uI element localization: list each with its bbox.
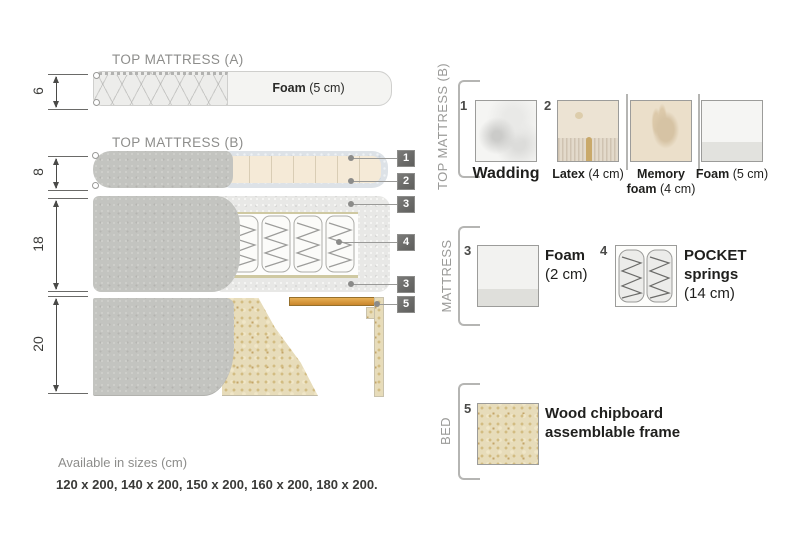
callout-5: 5	[397, 296, 415, 313]
foam-5cm-caption: Foam (5 cm)	[694, 167, 770, 182]
stitch-dot	[93, 72, 100, 79]
pocket-springs-caption: POCKETsprings(14 cm)	[684, 246, 747, 303]
top-mattress-b-cover	[93, 151, 233, 188]
leader-line-1	[351, 158, 397, 159]
available-sizes-title: Available in sizes (cm)	[58, 455, 187, 470]
legend-section-label-bed: BED	[438, 411, 454, 451]
legend-section-label-top-mattress-b: TOP MATTRESS (B)	[435, 70, 451, 190]
leader-line-5	[377, 304, 397, 305]
pocket-detail: (14 cm)	[684, 285, 735, 302]
leader-line-4	[339, 242, 397, 243]
latex-name: Latex	[552, 167, 585, 181]
top-mattress-a-illustration: Foam (5 cm)	[93, 71, 392, 106]
legend-item-4-number: 4	[600, 243, 607, 258]
foam2-name: Foam	[545, 247, 585, 264]
top-mattress-a-title: TOP MATTRESS (A)	[112, 52, 244, 67]
dimension-label-6: 6	[30, 83, 46, 99]
latex-caption: Latex (4 cm)	[550, 167, 626, 182]
dimension-arrow	[56, 201, 57, 289]
pocket-springs-thumbnail-art	[616, 246, 676, 306]
stitch-dot	[92, 152, 99, 159]
dimension-bracket-6	[48, 74, 88, 110]
legend-item-5-number: 5	[464, 401, 471, 416]
callout-4: 4	[397, 234, 415, 251]
dimension-bracket-8	[48, 156, 88, 191]
dimension-label-20: 20	[30, 332, 46, 356]
legend-item-2-number: 2	[544, 98, 551, 113]
latex-foam-blocks-illustration	[228, 156, 381, 183]
latex-detail: (4 cm)	[585, 167, 624, 181]
leader-dot-2	[348, 178, 354, 184]
foam-detail: (5 cm)	[306, 81, 345, 95]
foam-2cm-thumbnail	[477, 245, 539, 307]
pocket-name-line1: POCKET	[684, 247, 747, 264]
legend-item-1-number: 1	[460, 98, 467, 113]
foam-name: Foam	[272, 81, 305, 95]
leader-dot-3-top	[348, 201, 354, 207]
top-mattress-b-title: TOP MATTRESS (B)	[112, 135, 244, 150]
memory-name-line2: foam	[627, 182, 657, 196]
latex-thumbnail	[557, 100, 619, 162]
dimension-label-8: 8	[30, 164, 46, 180]
dimension-arrow	[56, 299, 57, 391]
memory-name-line1: Memory	[637, 167, 685, 181]
mattress-cover	[93, 196, 240, 292]
leader-dot-4	[336, 239, 342, 245]
foam-2cm-caption: Foam(2 cm)	[545, 246, 588, 284]
bed-upholstery-front	[93, 298, 234, 396]
leader-line-3-bottom	[351, 284, 397, 285]
foam2-detail: (2 cm)	[545, 266, 588, 283]
callout-3-top: 3	[397, 196, 415, 213]
chipboard-line2: assemblable frame	[545, 424, 680, 441]
memory-foam-caption: Memoryfoam (4 cm)	[623, 167, 699, 197]
leader-dot-5	[374, 301, 380, 307]
dimension-bracket-18	[48, 198, 88, 292]
legend-divider	[698, 94, 700, 170]
bed-side-rail	[374, 297, 384, 397]
leader-line-3-top	[351, 204, 397, 205]
stitch-dot	[93, 99, 100, 106]
leader-dot-1	[348, 155, 354, 161]
chipboard-thumbnail	[477, 403, 539, 465]
wood-slat-illustration	[289, 297, 384, 306]
foam5-name: Foam	[696, 167, 729, 181]
dimension-label-18: 18	[30, 232, 46, 256]
legend-section-label-mattress: MATTRESS	[439, 236, 455, 316]
leader-dot-3-bottom	[348, 281, 354, 287]
quilted-cover-pattern	[94, 72, 228, 105]
callout-1: 1	[397, 150, 415, 167]
wadding-thumbnail	[475, 100, 537, 162]
legend-item-3-number: 3	[464, 243, 471, 258]
foam-5cm-thumbnail	[701, 100, 763, 162]
leader-line-2	[351, 181, 397, 182]
dimension-bracket-20	[48, 296, 88, 394]
legend-divider	[626, 94, 628, 170]
chipboard-caption: Wood chipboardassemblable frame	[545, 404, 680, 442]
callout-2: 2	[397, 173, 415, 190]
memory-detail: (4 cm)	[656, 182, 695, 196]
wadding-caption: Wadding	[468, 166, 544, 181]
pocket-springs-thumbnail	[615, 245, 677, 307]
dimension-arrow	[56, 159, 57, 188]
memory-foam-thumbnail	[630, 100, 692, 162]
dimension-arrow	[56, 77, 57, 107]
pocket-name-line2: springs	[684, 266, 738, 283]
stitch-dot	[92, 182, 99, 189]
foam5-detail: (5 cm)	[729, 167, 768, 181]
callout-3-bottom: 3	[397, 276, 415, 293]
available-sizes-list: 120 x 200, 140 x 200, 150 x 200, 160 x 2…	[56, 477, 378, 492]
foam-layer-label: Foam (5 cm)	[234, 72, 383, 105]
mattress-construction-diagram: 6 8 18 20 TOP MATTRESS (A) Foam (5 cm) T…	[0, 0, 800, 533]
chipboard-line1: Wood chipboard	[545, 405, 663, 422]
foam-layer-bottom-line	[228, 275, 358, 278]
bed-chipboard-core-illustration	[222, 298, 318, 396]
